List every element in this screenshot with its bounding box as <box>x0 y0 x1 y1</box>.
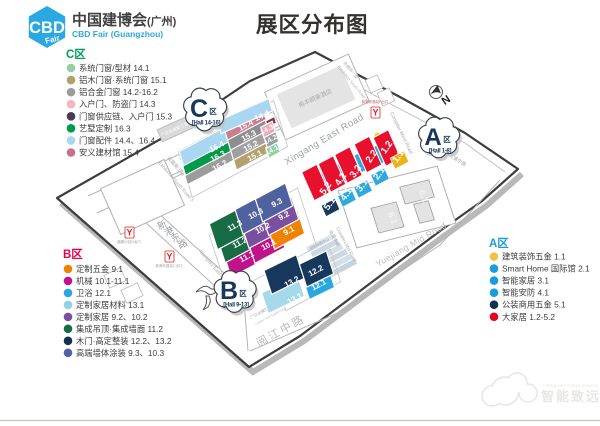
svg-text:CBD: CBD <box>29 19 65 37</box>
svg-text:集成吊顶·集成墙面 11.2: 集成吊顶·集成墙面 11.2 <box>76 324 163 334</box>
svg-text:区: 区 <box>209 107 217 116</box>
svg-text:A: A <box>424 124 441 151</box>
svg-text:Y: Y <box>166 252 172 262</box>
svg-text:安义建材馆 15.4: 安义建材馆 15.4 <box>79 147 139 157</box>
svg-text:系统门窗/型材 14.1: 系统门窗/型材 14.1 <box>79 63 150 73</box>
svg-text:机械 10.1-11.1: 机械 10.1-11.1 <box>76 276 130 286</box>
svg-text:定制家居材料 13.1: 定制家居材料 13.1 <box>76 300 145 310</box>
svg-text:B区: B区 <box>63 248 83 261</box>
svg-text:高端墙体涂装 9.3、10.3: 高端墙体涂装 9.3、10.3 <box>76 348 164 358</box>
svg-text:门窗配件 14.4、16.4: 门窗配件 14.4、16.4 <box>79 135 155 145</box>
svg-text:大家居 1.2-5.2: 大家居 1.2-5.2 <box>502 312 555 322</box>
svg-text:入户门、防盗门 14.3: 入户门、防盗门 14.3 <box>79 99 156 109</box>
svg-text:B: B <box>220 277 238 305</box>
svg-text:Y: Y <box>372 108 378 118</box>
svg-text:木门·高定整装 12.2、13.2: 木门·高定整装 12.2、13.2 <box>76 336 172 346</box>
svg-text:Smart Home 国际馆 2.1: Smart Home 国际馆 2.1 <box>502 264 590 274</box>
svg-text:智能安防 4.1: 智能安防 4.1 <box>502 288 549 298</box>
svg-text:[Hall 9-13]: [Hall 9-13] <box>223 303 249 309</box>
svg-text:智能致远: 智能致远 <box>541 389 600 404</box>
svg-text:新港东路站C出口: 新港东路站C出口 <box>155 263 183 268</box>
svg-text:C区: C区 <box>66 48 86 61</box>
svg-text:卫浴 12.1: 卫浴 12.1 <box>76 288 111 298</box>
svg-text:公装商用五金 5.1: 公装商用五金 5.1 <box>502 300 566 310</box>
svg-text:区: 区 <box>443 135 451 144</box>
svg-text:智能家居 3.1: 智能家居 3.1 <box>502 276 549 286</box>
svg-text:铝合金门窗 14.2-16.2: 铝合金门窗 14.2-16.2 <box>79 87 158 97</box>
svg-text:艺墅定制 16.3: 艺墅定制 16.3 <box>79 123 131 133</box>
svg-text:区: 区 <box>239 289 247 298</box>
svg-text:[Hall 14-16]: [Hall 14-16] <box>192 121 221 127</box>
svg-text:建筑装饰五金 1.1: 建筑装饰五金 1.1 <box>502 252 566 262</box>
svg-text:C: C <box>190 95 208 123</box>
svg-text:新港东路站F出口: 新港东路站F出口 <box>362 99 389 104</box>
svg-text:Intelligence makes distance: Intelligence makes distance <box>543 383 599 388</box>
svg-text:A区: A区 <box>489 237 509 250</box>
svg-text:铝木门窗·系统门窗 15.1: 铝木门窗·系统门窗 15.1 <box>79 75 167 85</box>
svg-text:定制五金 9.1: 定制五金 9.1 <box>76 264 123 274</box>
svg-text:CBD Fair (Guangzhou): CBD Fair (Guangzhou) <box>72 29 163 39</box>
svg-text:[Hall 1-8]: [Hall 1-8] <box>429 149 452 155</box>
svg-text:Y: Y <box>126 228 132 238</box>
svg-text:展区分布图: 展区分布图 <box>256 12 369 37</box>
svg-text:磨碟沙站D出口: 磨碟沙站D出口 <box>117 239 141 244</box>
svg-text:门窗供应链、入户门 15.3: 门窗供应链、入户门 15.3 <box>79 111 173 121</box>
svg-text:定制家居 9.2、10.2: 定制家居 9.2、10.2 <box>76 312 148 322</box>
